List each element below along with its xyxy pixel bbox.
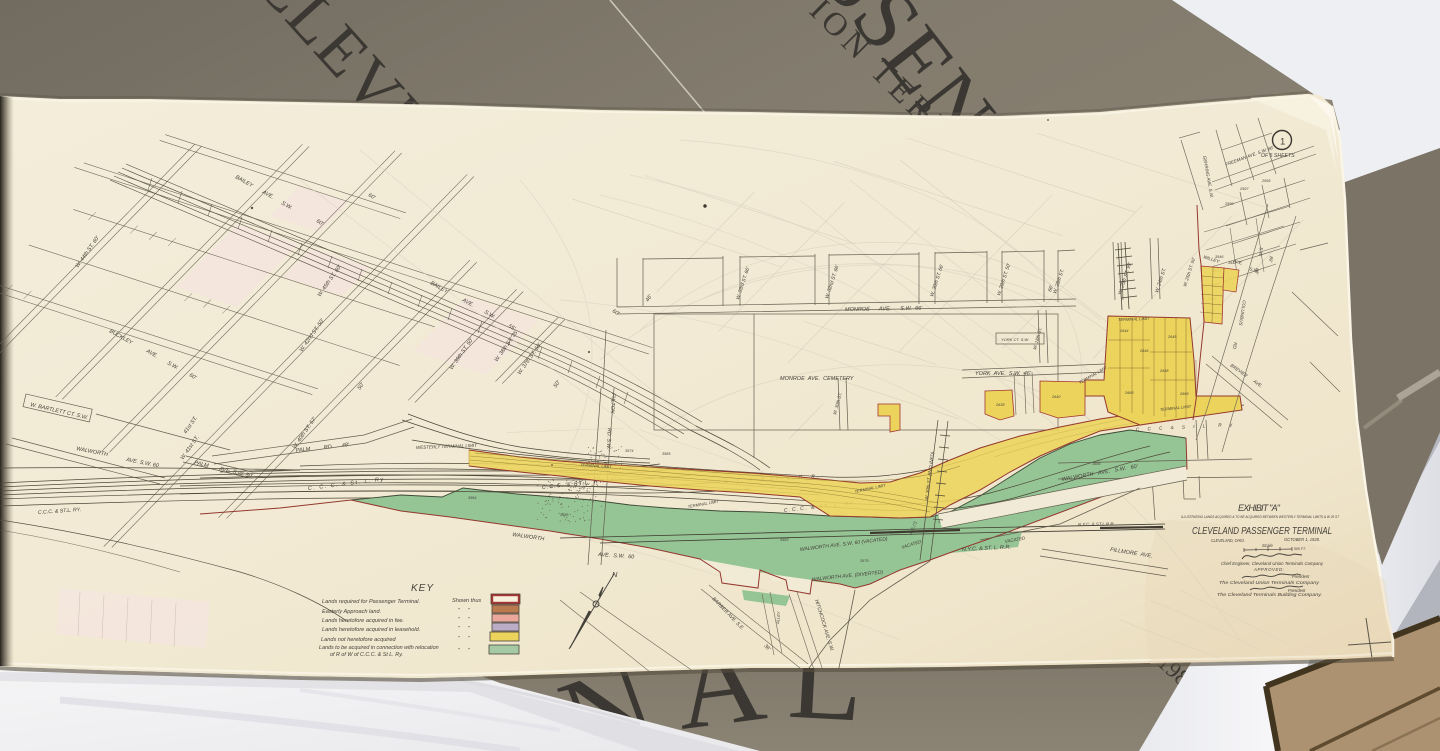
svg-text:1: 1 <box>1280 137 1285 148</box>
svg-text:YORK CT. S.W.: YORK CT. S.W. <box>1001 337 1029 342</box>
svg-text:2645: 2645 <box>1167 335 1177 339</box>
svg-text:2638: 2638 <box>995 403 1005 407</box>
svg-text:The Cleveland Union Terminals: The Cleveland Union Terminals Company <box>1219 580 1320 585</box>
svg-text:YORK AVE. S.W. 46': YORK AVE. S.W. 46' <box>975 371 1032 377</box>
svg-text:80': 80' <box>1268 256 1274 263</box>
svg-text:2640: 2640 <box>1051 395 1061 399</box>
svg-text:” ”: ” ” <box>458 626 471 632</box>
svg-text:2597: 2597 <box>1239 187 1249 191</box>
svg-text:ILLUSTRATING LANDS ACQUIRED &: ILLUSTRATING LANDS ACQUIRED & TO BE ACQU… <box>1181 515 1340 519</box>
svg-text:OF 5 SHEETS: OF 5 SHEETS <box>1261 153 1295 159</box>
svg-text:2648: 2648 <box>1159 369 1169 373</box>
svg-text:EXHIBIT "A": EXHIBIT "A" <box>1238 503 1281 513</box>
svg-text:of R of W of C.C.C. &: of R of W of C.C.C. & St L. Ry. <box>330 652 403 658</box>
svg-text:Easterly Approach land.: Easterly Approach land. <box>322 609 381 615</box>
svg-text:” ”: ” ” <box>458 648 471 654</box>
svg-text:3585: 3585 <box>662 452 671 456</box>
svg-text:OCTOBER 1, 1928.: OCTOBER 1, 1928. <box>1284 537 1320 542</box>
svg-text:APPROVED:: APPROVED: <box>1253 567 1285 572</box>
svg-text:N: N <box>612 570 618 579</box>
svg-text:2644: 2644 <box>1119 329 1128 333</box>
svg-text:” ”: ” ” <box>458 617 471 623</box>
svg-text:CLEVELAND PASSENGER TERMINAL: CLEVELAND PASSENGER TERMINAL <box>1192 526 1332 537</box>
svg-text:KEY: KEY <box>411 583 434 594</box>
svg-text:3584: 3584 <box>468 496 476 500</box>
svg-text:500 FT.: 500 FT. <box>1294 547 1306 551</box>
svg-text:President: President <box>1292 574 1310 579</box>
svg-text:Lands heretofore acquired: Lands heretofore acquired in fee. <box>322 618 404 624</box>
svg-text:The Cleveland Terminals Buildi: The Cleveland Terminals Building Company… <box>1217 592 1322 597</box>
svg-text:CLEVELAND, OHIO.: CLEVELAND, OHIO. <box>1211 538 1245 543</box>
svg-text:” ”: ” ” <box>458 636 471 642</box>
svg-text:” ”: ” ” <box>458 608 471 614</box>
svg-text:Chief Engineer, Cleveland Unio: Chief Engineer, Cleveland Union Terminal… <box>1221 561 1324 566</box>
svg-text:N.Y.C. & ST.L.R.R.: N.Y.C. & ST.L.R.R. <box>1078 521 1115 527</box>
svg-text:Lands required for Passenge: Lands required for Passenger Terminal. <box>322 599 420 605</box>
svg-text:2646: 2646 <box>1139 349 1149 353</box>
svg-text:2669: 2669 <box>1179 392 1189 396</box>
svg-text:3574: 3574 <box>625 449 633 453</box>
svg-text:2668: 2668 <box>1124 391 1134 395</box>
svg-text:Shown thus: Shown thus <box>452 598 481 604</box>
svg-text:FULTON: FULTON <box>609 393 616 414</box>
svg-text:3585: 3585 <box>560 513 569 517</box>
svg-text:3583: 3583 <box>780 538 789 542</box>
svg-text:Lands heretofore acquired: Lands heretofore acquired in leasehold. <box>322 627 420 633</box>
svg-text:60': 60' <box>1254 268 1260 275</box>
svg-text:MONROE AVE. CEMETERY: MONROE AVE. CEMETERY <box>780 376 854 382</box>
svg-text:Lands to be acquired in conn: Lands to be acquired in connection with … <box>319 645 439 651</box>
svg-text:2595: 2595 <box>1261 179 1271 183</box>
svg-text:3579: 3579 <box>860 559 869 563</box>
svg-text:RD. S.W.: RD. S.W. <box>605 428 612 450</box>
svg-text:Lands not heretofore acqui: Lands not heretofore acquired <box>321 637 397 643</box>
